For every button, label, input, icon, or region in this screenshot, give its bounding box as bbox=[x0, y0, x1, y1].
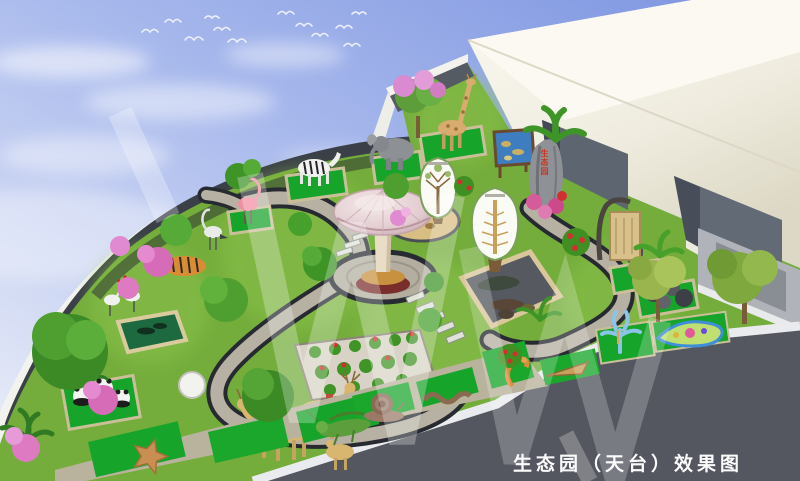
white-dome-sculpture bbox=[179, 372, 205, 398]
stone-inscription: 生态园 bbox=[540, 149, 548, 176]
image-caption: 生态园（天台）效果图 bbox=[508, 449, 748, 476]
tortoise-statue bbox=[498, 309, 514, 319]
scene-svg bbox=[0, 0, 800, 481]
rendering-canvas: 生态园（天台）效果图 生态园 bbox=[0, 0, 800, 481]
red-fruit-bush bbox=[562, 228, 590, 256]
